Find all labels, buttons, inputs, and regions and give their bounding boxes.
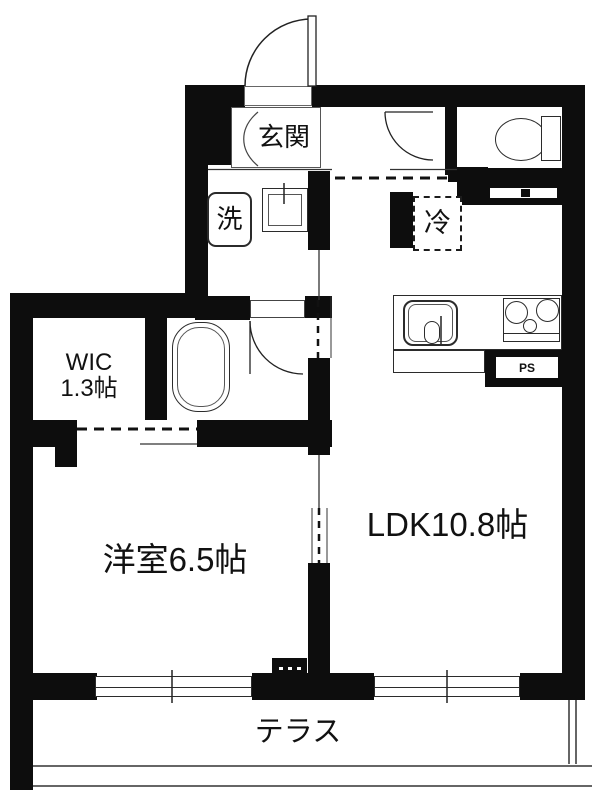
wic-label-line1: WIC [66,350,113,376]
floor-plan: 玄関 洗 冷 WIC 1.3帖 PS 洋室6.5帖 LDK10.8帖 テラス [0,0,612,800]
wall-toilet-left-stub [445,107,457,175]
wall-below-wic [10,420,77,447]
toilet-tank [541,116,561,161]
wall-upper-left [185,85,208,318]
wall-fridge-left [390,192,413,248]
room-label-wic: WIC 1.3帖 [39,347,139,405]
cabinet-speck [279,667,283,670]
stove-front-line [504,333,559,334]
wall-partition-lower [308,563,330,675]
wall-wic-right [145,318,167,420]
stove-burner-right [536,299,559,322]
wall-right [562,85,585,700]
toilet-door-arc [385,112,433,160]
wall-bath-top [195,296,250,320]
sink-drainer [424,321,440,344]
bathtub-inner [177,327,225,407]
entrance-door-leaf [308,16,316,86]
room-label-terrace: テラス [238,714,358,752]
cabinet-speck [297,667,301,670]
entrance-door-arc [245,19,312,86]
low-cabinet-bar [272,658,307,675]
window-west-room [95,676,252,697]
wall-hall-stub [448,167,488,182]
toilet-bowl [495,118,547,161]
bath-door-arc [250,321,303,374]
wall-below-wic-stub [55,447,77,467]
wall-bath-top-stub [305,296,332,318]
window-mid-line [96,687,251,688]
cabinet-speck [288,667,292,670]
wall-bottom-seg3 [520,673,585,700]
wall-bottom-seg1 [10,673,97,700]
room-label-western: 洋室6.5帖 [60,537,290,583]
bath-door-header [250,300,305,318]
window-ldk [374,676,520,697]
shoe-cabinet [208,107,231,165]
wall-left [10,293,33,790]
washing-machine-label: 洗 [209,197,250,242]
wall-wic-top [10,293,208,318]
wall-bottom-seg2 [252,673,374,700]
kitchen-counter-lower [393,350,485,373]
toilet-shelf-tick [521,189,530,197]
wall-partition-mid [308,358,330,455]
refrigerator-label: 冷 [415,203,460,245]
washbasin-inner [268,194,302,226]
room-label-ldk: LDK10.8帖 [335,502,560,548]
room-label-genkan: 玄関 [248,121,320,153]
window-mid-line [375,687,519,688]
ps-slot: PS [496,357,558,378]
wic-label-line2: 1.3帖 [60,376,117,402]
stove-burner-small [523,319,537,333]
entrance-threshold [244,86,312,106]
wall-partition-upper [308,171,330,250]
wall-top-right [312,85,585,107]
ps-label: PS [519,361,535,375]
